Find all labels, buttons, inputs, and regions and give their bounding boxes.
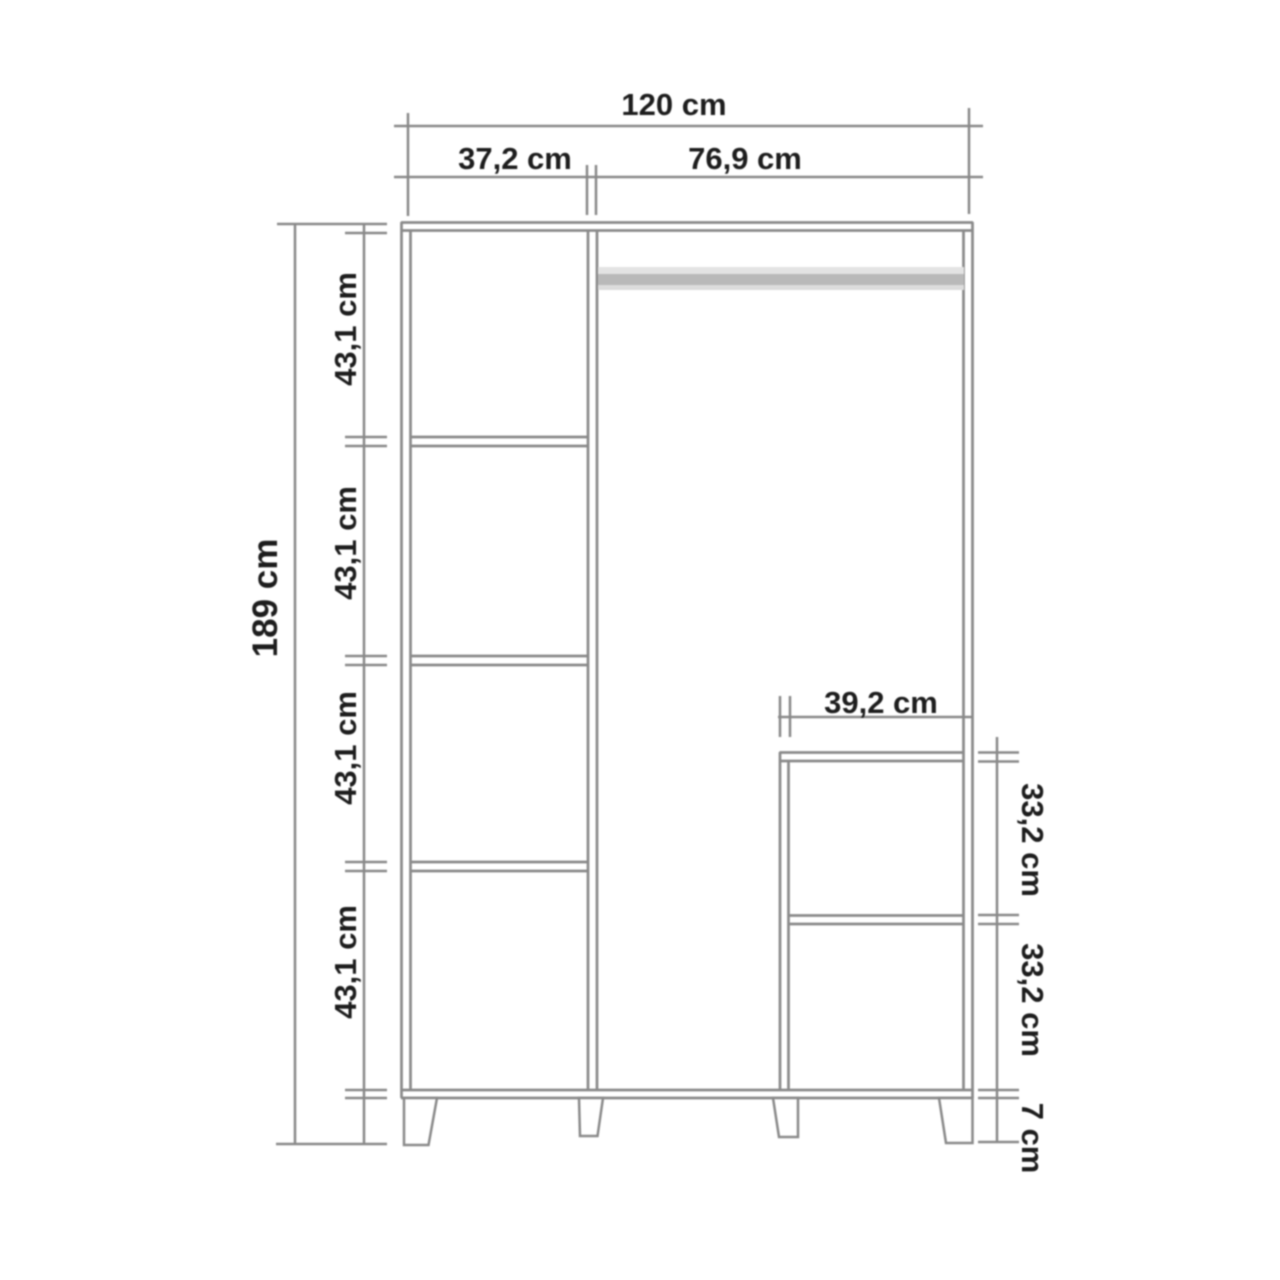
svg-text:76,9 cm: 76,9 cm bbox=[688, 141, 802, 176]
svg-text:43,1 cm: 43,1 cm bbox=[328, 905, 363, 1019]
svg-text:37,2 cm: 37,2 cm bbox=[458, 141, 572, 176]
svg-text:43,1 cm: 43,1 cm bbox=[328, 272, 363, 386]
svg-text:120 cm: 120 cm bbox=[621, 87, 726, 122]
svg-text:33,2 cm: 33,2 cm bbox=[1015, 783, 1050, 897]
svg-text:43,1 cm: 43,1 cm bbox=[328, 691, 363, 805]
svg-text:39,2 cm: 39,2 cm bbox=[824, 685, 938, 720]
svg-text:189 cm: 189 cm bbox=[246, 539, 285, 658]
svg-text:43,1 cm: 43,1 cm bbox=[328, 486, 363, 600]
svg-text:33,2 cm: 33,2 cm bbox=[1015, 943, 1050, 1057]
svg-text:7 cm: 7 cm bbox=[1015, 1103, 1050, 1174]
